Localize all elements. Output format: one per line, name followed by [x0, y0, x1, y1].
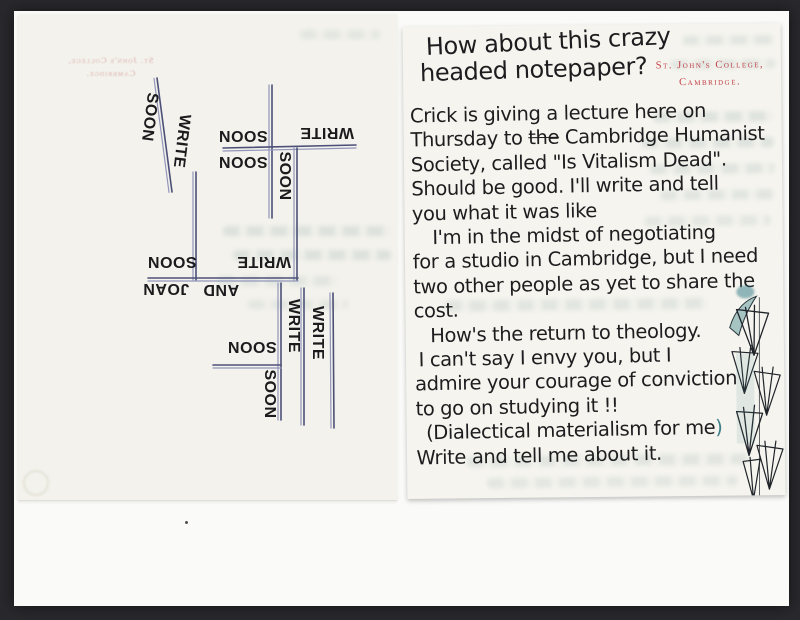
dust-speck	[185, 521, 188, 524]
doodle-word: WRITE	[237, 252, 291, 270]
doodle-word: JOAN	[143, 279, 189, 297]
doodle-word: SOON	[218, 126, 267, 144]
doodle-word: WRITE	[284, 299, 302, 353]
doodle-word: SOON	[218, 152, 267, 170]
intro-line-2: headed notepaper?	[420, 52, 648, 87]
doodle-word: SOON	[275, 151, 293, 200]
doodle-word: SOON	[260, 369, 278, 418]
doodle-word: AND	[203, 280, 239, 298]
letterhead-line1: St. John's College,	[635, 56, 785, 75]
doodle-word: WRITE	[308, 306, 326, 360]
letterhead-line2: Cambridge.	[635, 73, 785, 92]
doodle-word: WRITE	[300, 123, 354, 141]
letter-scan: St. John's College, Cambridge. SOONWRITE…	[0, 0, 800, 620]
college-letterhead: St. John's College, Cambridge.	[635, 56, 785, 92]
bleedthrough-smudge	[487, 476, 737, 489]
fan-doodle	[723, 293, 785, 499]
doodle-word: SOON	[147, 252, 196, 270]
bleedthrough-smudge	[683, 35, 775, 45]
doodle-word: SOON	[227, 337, 276, 355]
doodle-page: St. John's College, Cambridge. SOONWRITE…	[18, 14, 397, 501]
notecard: How about this crazy headed notepaper? S…	[403, 23, 786, 499]
doodle-lines	[18, 14, 397, 500]
